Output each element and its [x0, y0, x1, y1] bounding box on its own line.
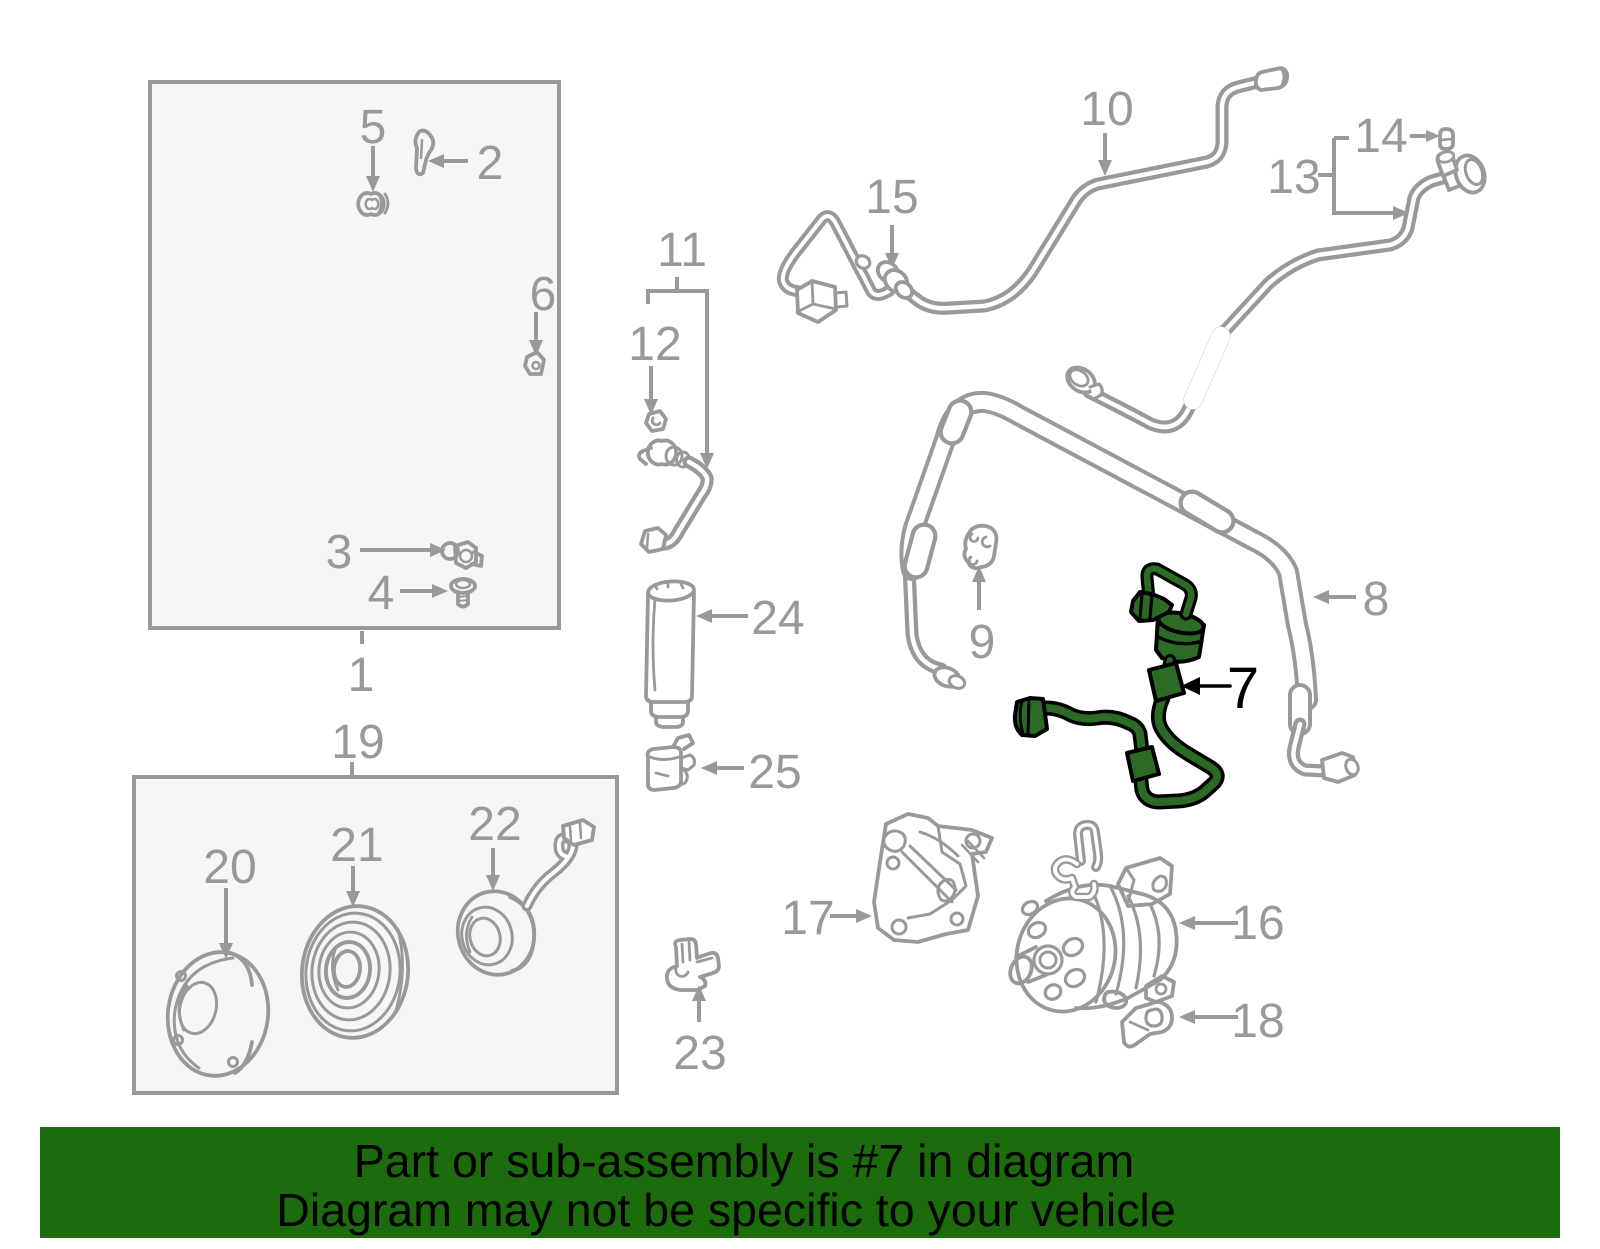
svg-text:16: 16 [1231, 897, 1284, 950]
svg-text:21: 21 [330, 819, 383, 872]
svg-text:11: 11 [657, 224, 707, 277]
svg-text:23: 23 [673, 1027, 726, 1080]
svg-text:1: 1 [348, 649, 375, 702]
svg-text:25: 25 [748, 746, 801, 799]
svg-text:4: 4 [368, 567, 395, 620]
svg-text:22: 22 [468, 798, 521, 851]
svg-text:7: 7 [1227, 656, 1259, 721]
svg-text:10: 10 [1080, 83, 1133, 136]
svg-text:8: 8 [1363, 573, 1390, 626]
svg-text:6: 6 [530, 268, 557, 321]
svg-text:24: 24 [751, 592, 804, 645]
svg-text:14: 14 [1354, 110, 1407, 163]
svg-text:Part or sub-assembly is #7 in: Part or sub-assembly is #7 in diagram [354, 1135, 1135, 1187]
svg-text:Diagram may not be specific to: Diagram may not be specific to your vehi… [276, 1184, 1175, 1236]
svg-text:15: 15 [865, 171, 918, 224]
svg-text:17: 17 [781, 892, 834, 945]
svg-text:20: 20 [203, 841, 256, 894]
svg-text:18: 18 [1231, 995, 1284, 1048]
svg-text:9: 9 [969, 616, 996, 669]
svg-text:5: 5 [360, 101, 387, 154]
svg-text:19: 19 [331, 716, 384, 769]
svg-text:3: 3 [326, 526, 353, 579]
svg-text:13: 13 [1267, 151, 1320, 204]
svg-text:2: 2 [477, 137, 504, 190]
svg-text:12: 12 [628, 318, 681, 371]
